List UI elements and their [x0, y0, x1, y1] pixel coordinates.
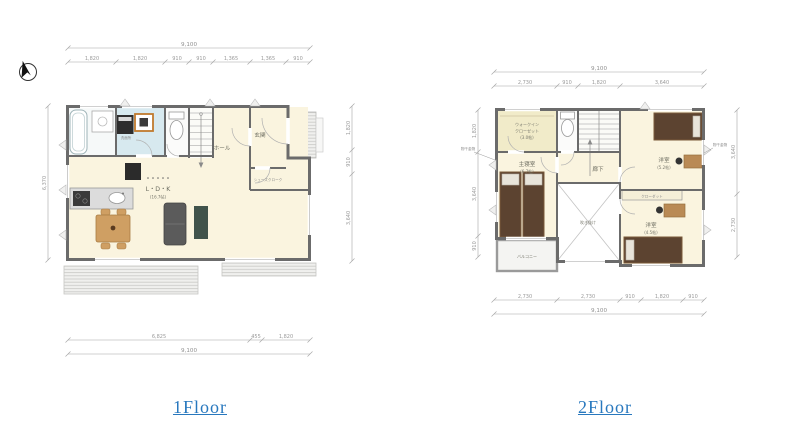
master-bedroom-size: (6.7帖): [520, 168, 534, 174]
laundry-hw-label-left: 物干金物: [461, 146, 476, 151]
room1-bed: [654, 113, 702, 140]
dim-label: 1,820: [279, 334, 293, 340]
floor2-caption-link[interactable]: 2Floor: [520, 397, 690, 418]
master-bedroom-label: 主寝室: [519, 160, 536, 168]
floor1-plan: 洗面所 ホール 玄関 シューズクローク L・D・K (16.7帖) 9,100 …: [42, 42, 355, 357]
washing-machine: [117, 115, 134, 134]
entrance-label: 玄関: [254, 131, 266, 139]
wood-deck-right: [222, 263, 316, 276]
refrigerator: [125, 163, 141, 180]
dim-label: 1,820: [346, 121, 352, 135]
dim-label: 9,100: [591, 308, 607, 314]
balcony-label: バルコニー: [517, 254, 537, 259]
wood-deck: [64, 266, 198, 294]
dim-label: 2,730: [518, 294, 532, 300]
bathtub: [70, 110, 87, 154]
floor2-plan: ウォークイン クローゼット (3.0帖) 主寝室 (6.7帖) 廊下 洋室 (5…: [461, 66, 740, 317]
floor-plan-sheet: 洗面所 ホール 玄関 シューズクローク L・D・K (16.7帖) 9,100 …: [0, 0, 800, 441]
dim-label: 910: [472, 241, 478, 251]
room2-label: 洋室: [645, 221, 657, 229]
hallway-label: 廊下: [592, 165, 604, 173]
room1-size: (5.2帖): [657, 164, 671, 170]
dim-label: 1,820: [472, 124, 478, 138]
room2-size: (4.5帖): [644, 229, 658, 235]
room1-label: 洋室: [658, 156, 670, 164]
floor1-caption-link[interactable]: 1Floor: [115, 397, 285, 418]
dim-label: 3,640: [346, 211, 352, 225]
dim-label: 2,730: [731, 218, 737, 232]
porch-step: [316, 118, 323, 152]
dim-label: 3,640: [731, 145, 737, 159]
dim-label: 1,365: [224, 56, 238, 62]
dim-label: 910: [346, 157, 352, 167]
toilet-bowl: [169, 112, 184, 140]
dim-label: 455: [251, 334, 261, 340]
dim-label: 1,820: [655, 294, 669, 300]
wic-label2: クローゼット: [515, 128, 539, 134]
closet-label: クローゼット: [641, 194, 663, 199]
dim-label: 910: [196, 56, 206, 62]
shoe-closet-label: シューズクローク: [254, 177, 283, 182]
dim-label: 6,370: [42, 176, 48, 190]
dim-label: 2,730: [581, 294, 595, 300]
dim-label: 1,820: [133, 56, 147, 62]
dim-label: 9,100: [591, 66, 607, 72]
dim-label: 9,100: [181, 42, 197, 48]
hall-label: ホール: [214, 145, 231, 152]
dim-line: [735, 108, 740, 260]
toilet2-bowl: [561, 112, 575, 137]
dim-line: [66, 338, 313, 343]
dim-label: 3,640: [655, 80, 669, 86]
dim-label: 1,365: [261, 56, 275, 62]
dim-label: 9,100: [181, 348, 197, 354]
room2-bed: [624, 237, 682, 263]
ldk-size-label: (16.7帖): [150, 194, 166, 200]
vanity-unit: [135, 114, 153, 131]
wic-size-label: (3.0帖): [520, 134, 534, 140]
dim-label: 3,640: [472, 187, 478, 201]
void-label: 吹き抜け: [580, 219, 596, 225]
dim-label: 910: [688, 294, 698, 300]
dim-label: 6,825: [152, 334, 166, 340]
dim-label: 910: [625, 294, 635, 300]
dim-label: 1,820: [592, 80, 606, 86]
washroom-label: 洗面所: [121, 135, 132, 140]
dim-line: [66, 60, 313, 65]
wic-label: ウォークイン: [515, 121, 539, 127]
dim-label: 910: [293, 56, 303, 62]
dim-label: 2,730: [518, 80, 532, 86]
dim-label: 1,820: [85, 56, 99, 62]
laundry-hw-label-right: 物干金物: [713, 142, 728, 147]
bath-counter: [92, 111, 113, 132]
dim-label: 910: [172, 56, 182, 62]
sofa: [164, 203, 186, 245]
dim-label: 910: [562, 80, 572, 86]
ldk-label: L・D・K: [146, 186, 172, 193]
north-arrow-icon: [19, 60, 36, 80]
kitchen-counter: [70, 188, 133, 209]
tv-board: [194, 206, 208, 239]
floor-plan-drawing: 洗面所 ホール 玄関 シューズクローク L・D・K (16.7帖) 9,100 …: [0, 0, 800, 441]
